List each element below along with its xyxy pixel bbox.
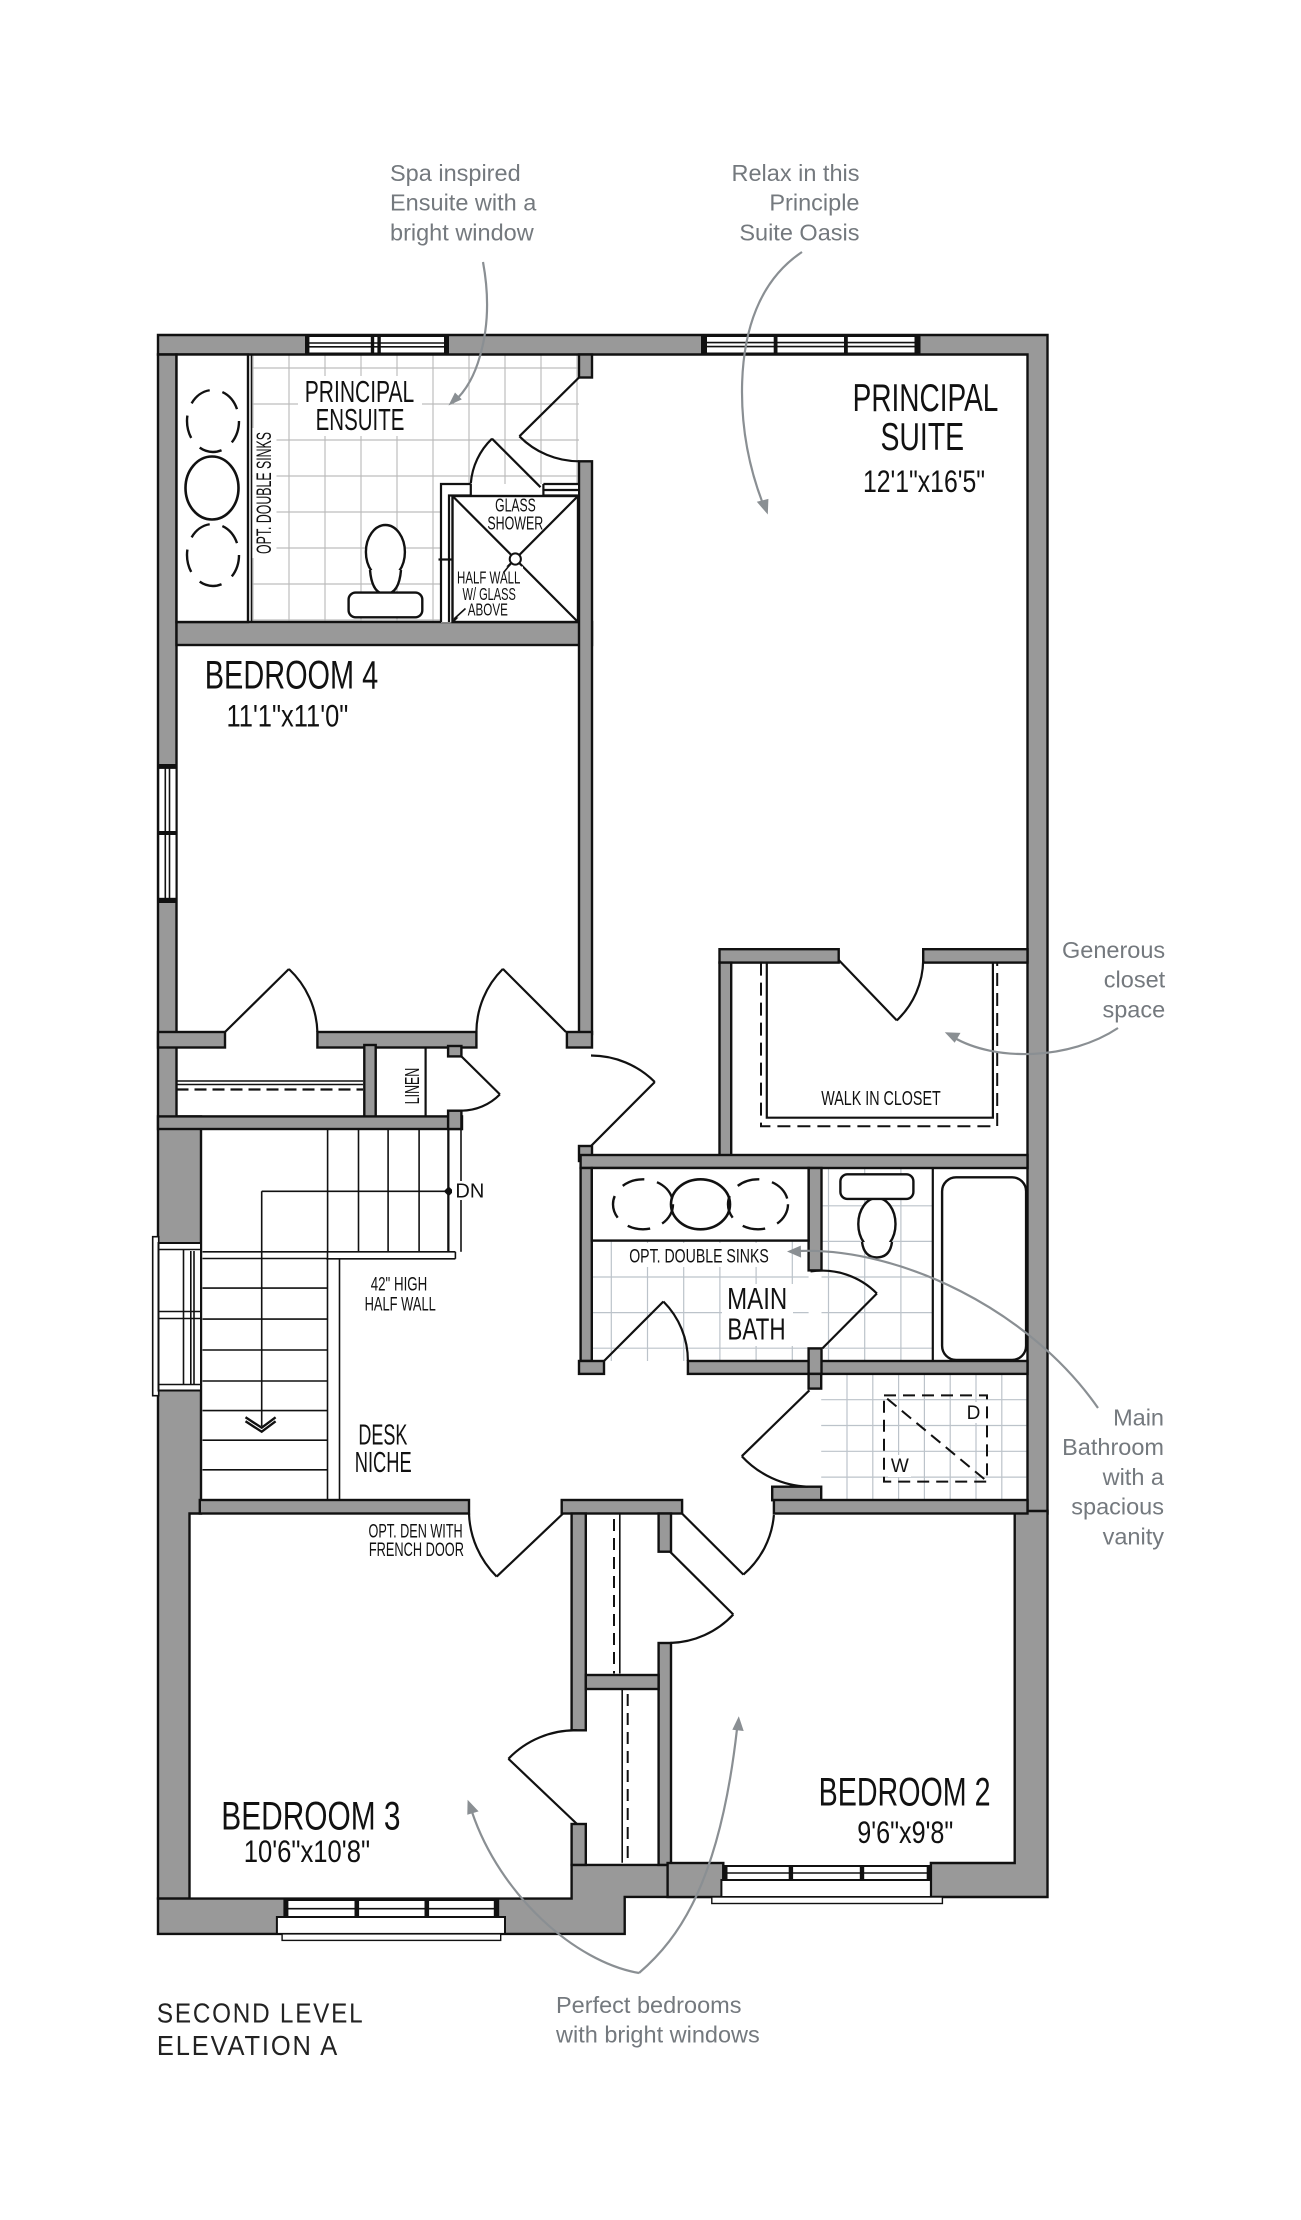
svg-text:Main: Main <box>1113 1405 1164 1431</box>
svg-text:BEDROOM 2: BEDROOM 2 <box>819 1770 991 1814</box>
svg-text:BATH: BATH <box>727 1311 785 1346</box>
svg-text:Principle: Principle <box>769 190 859 216</box>
svg-text:BEDROOM 3: BEDROOM 3 <box>221 1795 400 1839</box>
svg-text:SHOWER: SHOWER <box>487 513 543 533</box>
svg-text:9'6"x9'8": 9'6"x9'8" <box>857 1814 953 1850</box>
svg-text:11'1"x11'0": 11'1"x11'0" <box>227 697 349 733</box>
svg-text:10'6"x10'8": 10'6"x10'8" <box>244 1833 370 1869</box>
svg-text:Perfect bedrooms: Perfect bedrooms <box>556 1992 741 2018</box>
svg-text:Relax in this: Relax in this <box>732 160 860 186</box>
svg-text:bright window: bright window <box>390 219 535 245</box>
svg-text:Bathroom: Bathroom <box>1062 1434 1164 1460</box>
svg-text:vanity: vanity <box>1103 1523 1165 1549</box>
svg-text:Ensuite with a: Ensuite with a <box>390 190 537 216</box>
svg-text:Spa inspired: Spa inspired <box>390 160 521 186</box>
svg-text:FRENCH DOOR: FRENCH DOOR <box>369 1540 464 1561</box>
svg-text:SUITE: SUITE <box>881 416 965 459</box>
svg-text:PRINCIPAL: PRINCIPAL <box>853 377 999 420</box>
svg-text:HALF WALL: HALF WALL <box>365 1295 436 1316</box>
svg-text:with bright windows: with bright windows <box>555 2022 760 2048</box>
svg-text:OPT. DOUBLE SINKS: OPT. DOUBLE SINKS <box>252 432 276 554</box>
svg-text:42" HIGH: 42" HIGH <box>371 1275 428 1296</box>
svg-text:12'1"x16'5": 12'1"x16'5" <box>863 463 985 499</box>
svg-text:Suite Oasis: Suite Oasis <box>739 219 859 245</box>
svg-text:space: space <box>1102 996 1165 1022</box>
svg-text:DN: DN <box>455 1181 484 1203</box>
svg-text:SECOND LEVEL: SECOND LEVEL <box>157 1998 365 2029</box>
svg-text:D: D <box>967 1403 981 1424</box>
svg-text:OPT. DOUBLE SINKS: OPT. DOUBLE SINKS <box>629 1246 769 1268</box>
svg-text:ENSUITE: ENSUITE <box>316 402 405 437</box>
svg-text:LINEN: LINEN <box>402 1068 424 1105</box>
svg-text:closet: closet <box>1104 967 1166 993</box>
svg-text:with a: with a <box>1102 1464 1165 1490</box>
svg-text:ABOVE: ABOVE <box>468 599 508 619</box>
svg-text:BEDROOM 4: BEDROOM 4 <box>205 653 379 697</box>
svg-text:ELEVATION A: ELEVATION A <box>157 2030 339 2061</box>
svg-text:WALK IN CLOSET: WALK IN CLOSET <box>821 1088 941 1110</box>
svg-text:Generous: Generous <box>1062 937 1165 963</box>
svg-text:W: W <box>891 1456 909 1477</box>
svg-text:NICHE: NICHE <box>355 1447 412 1479</box>
svg-text:spacious: spacious <box>1071 1494 1164 1520</box>
